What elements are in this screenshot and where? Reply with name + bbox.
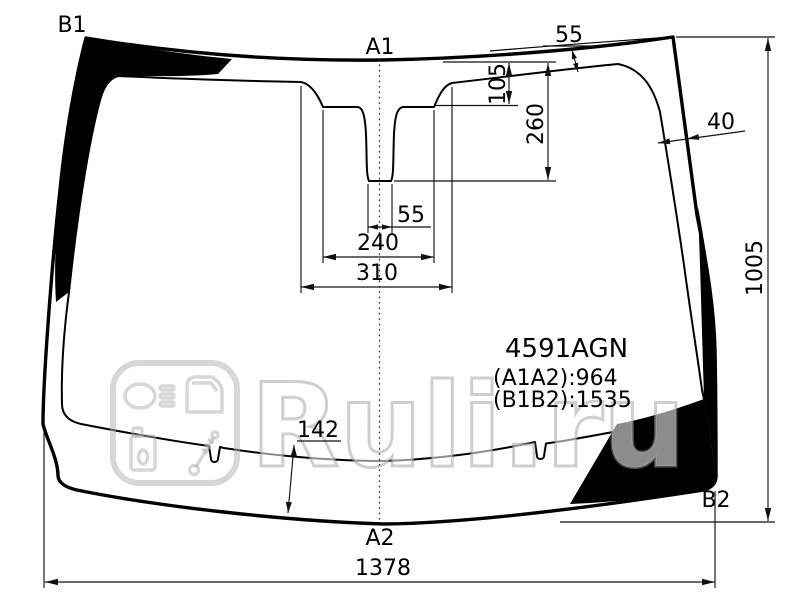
ref-point-a1: A1 xyxy=(365,35,394,60)
part-b1b2-length: (B1B2):1535 xyxy=(493,388,632,413)
diagram-canvas: Ruli.ru xyxy=(0,0,800,600)
dim-right-band-width: 40 xyxy=(707,110,735,135)
oil-canister-icon xyxy=(131,428,155,470)
dim-band-step-drop: 105 xyxy=(486,63,511,105)
part-info-block: 4591AGN (A1A2):964 (B1B2):1535 xyxy=(493,334,632,413)
shock-absorber-icon xyxy=(190,432,219,475)
dim-mirror-pocket-depth: 260 xyxy=(524,103,549,145)
headlight-icon xyxy=(125,384,174,408)
watermark-logo-icons xyxy=(125,377,222,475)
dim-top-edge-gap: 55 xyxy=(555,23,583,48)
windshield-diagram: Ruli.ru xyxy=(0,0,800,600)
dim-mirror-outer-width: 310 xyxy=(356,261,398,286)
ref-point-a2: A2 xyxy=(365,526,394,551)
dim-glass-height: 1005 xyxy=(743,240,768,296)
dimension-lines xyxy=(45,38,768,582)
ref-point-b2: B2 xyxy=(701,488,730,513)
dim-glass-width: 1378 xyxy=(355,556,411,581)
dim-mirror-base-width: 55 xyxy=(397,203,425,228)
dim-mirror-mid-width: 240 xyxy=(357,231,399,256)
extension-lines xyxy=(44,37,775,588)
ref-point-b1: B1 xyxy=(57,13,86,38)
part-code: 4591AGN xyxy=(505,334,628,364)
car-door-icon xyxy=(187,377,222,412)
dim-bottom-band-height: 142 xyxy=(297,418,339,443)
